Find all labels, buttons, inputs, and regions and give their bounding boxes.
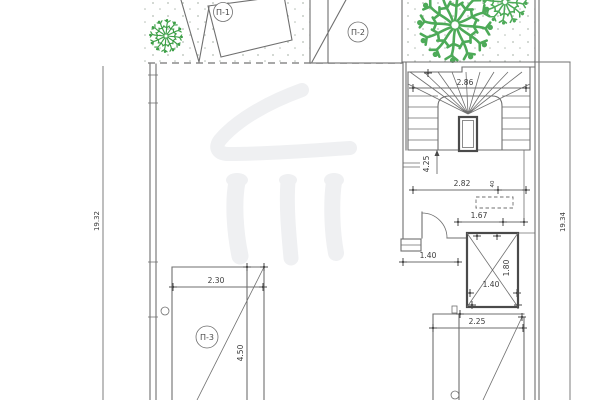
dim-shaft-height-label: 1.80	[502, 259, 511, 276]
panel-p2-label: П-2	[351, 28, 365, 37]
ramp: 2.25	[429, 306, 527, 400]
dim-offset-label: 40	[490, 180, 496, 187]
dim-total-right-label: 19.34	[559, 211, 567, 232]
dim-shaft-width-label: 1.40	[483, 280, 500, 289]
door-swing	[401, 212, 467, 251]
dim-p3-width-label: 2.30	[208, 276, 225, 285]
dimension-total-left: 19.32	[93, 66, 103, 400]
dim-total-left-label: 19.32	[93, 211, 101, 231]
dim-stair-drop-label: 4.25	[422, 155, 431, 172]
dim-p3-height-label: 4.50	[236, 344, 245, 361]
dimension-lobby-140: 1.40	[399, 251, 462, 266]
dim-stair-width-label: 2.86	[457, 78, 474, 87]
floor-plan-canvas: 2.86 4.25 2.82 40 1.67 1.40	[0, 0, 600, 400]
dim-corridor-label: 2.82	[454, 179, 471, 188]
dim-lobby-140-label: 1.40	[420, 251, 437, 260]
dimension-clear-167: 1.67	[454, 211, 528, 226]
panel-p3-label: П-3	[200, 333, 214, 342]
dimension-total-right: 19.34	[559, 62, 570, 400]
dimension-corridor: 2.82 40	[409, 179, 530, 208]
dimension-stair-width: 2.86	[409, 69, 530, 92]
panel-p3: 2.30 4.50	[169, 263, 268, 400]
dim-ramp-label: 2.25	[469, 317, 486, 326]
wall-port-circle	[161, 307, 169, 315]
watermark-logo	[217, 90, 350, 258]
panel-p1-label: П-1	[216, 8, 230, 17]
dimension-stair-drop: 4.25	[422, 150, 440, 174]
elevator-shaft: 1.40 1.80	[466, 232, 522, 309]
dashed-opening	[476, 197, 513, 208]
dim-clear-167-label: 1.67	[471, 211, 488, 220]
floor-plan-drawing: 2.86 4.25 2.82 40 1.67 1.40	[0, 0, 600, 400]
